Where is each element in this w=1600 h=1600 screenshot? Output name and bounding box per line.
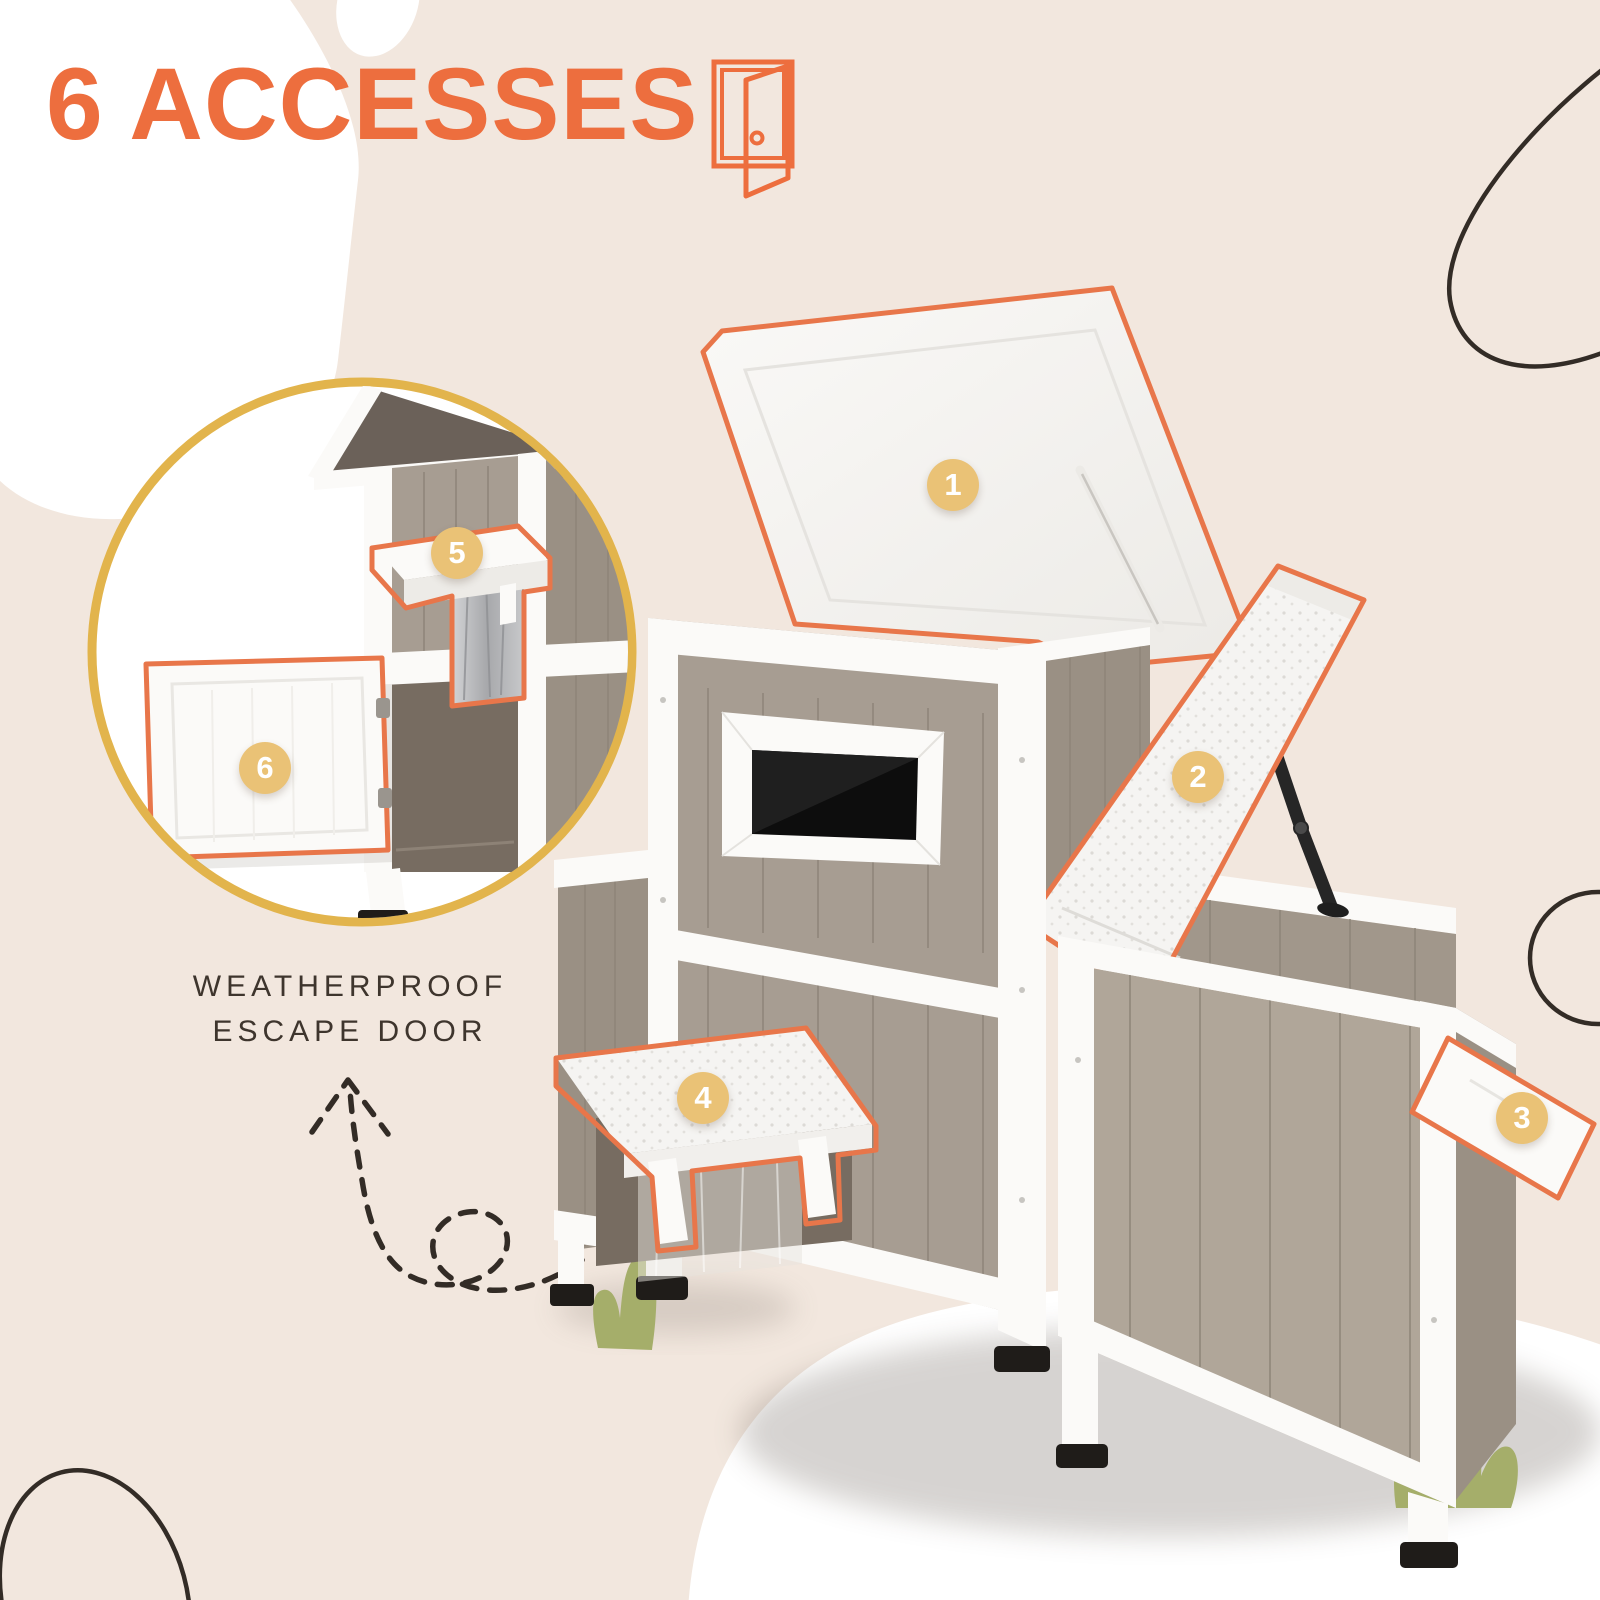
foot-cap (1056, 1444, 1108, 1468)
door-hinge (378, 788, 392, 808)
inset-shelf-bracket (500, 583, 516, 625)
foot-cap (550, 1284, 594, 1306)
product-infographic: 6 ACCESSES WEATHERPROOF ESCAPE DOOR 1 2 … (0, 0, 1600, 1600)
badge-access-5: 5 (431, 527, 483, 579)
badge-access-1: 1 (927, 459, 979, 511)
badge-access-2: 2 (1172, 751, 1224, 803)
inset-caption: WEATHERPROOF ESCAPE DOOR (140, 964, 560, 1054)
badge-access-6: 6 (239, 742, 291, 794)
door-hinge (376, 698, 390, 718)
box-left-post (1058, 936, 1094, 1350)
foot-cap (1400, 1542, 1458, 1568)
page-title: 6 ACCESSES (46, 46, 698, 163)
badge-access-4: 4 (677, 1072, 729, 1124)
foot-cap (994, 1346, 1050, 1372)
corner-post (994, 648, 1050, 1372)
caption-line-2: ESCAPE DOOR (140, 1009, 560, 1054)
badge-access-3: 3 (1496, 1092, 1548, 1144)
illustration-canvas (0, 0, 1600, 1600)
cabin-window (722, 712, 944, 865)
caption-line-1: WEATHERPROOF (140, 964, 560, 1009)
